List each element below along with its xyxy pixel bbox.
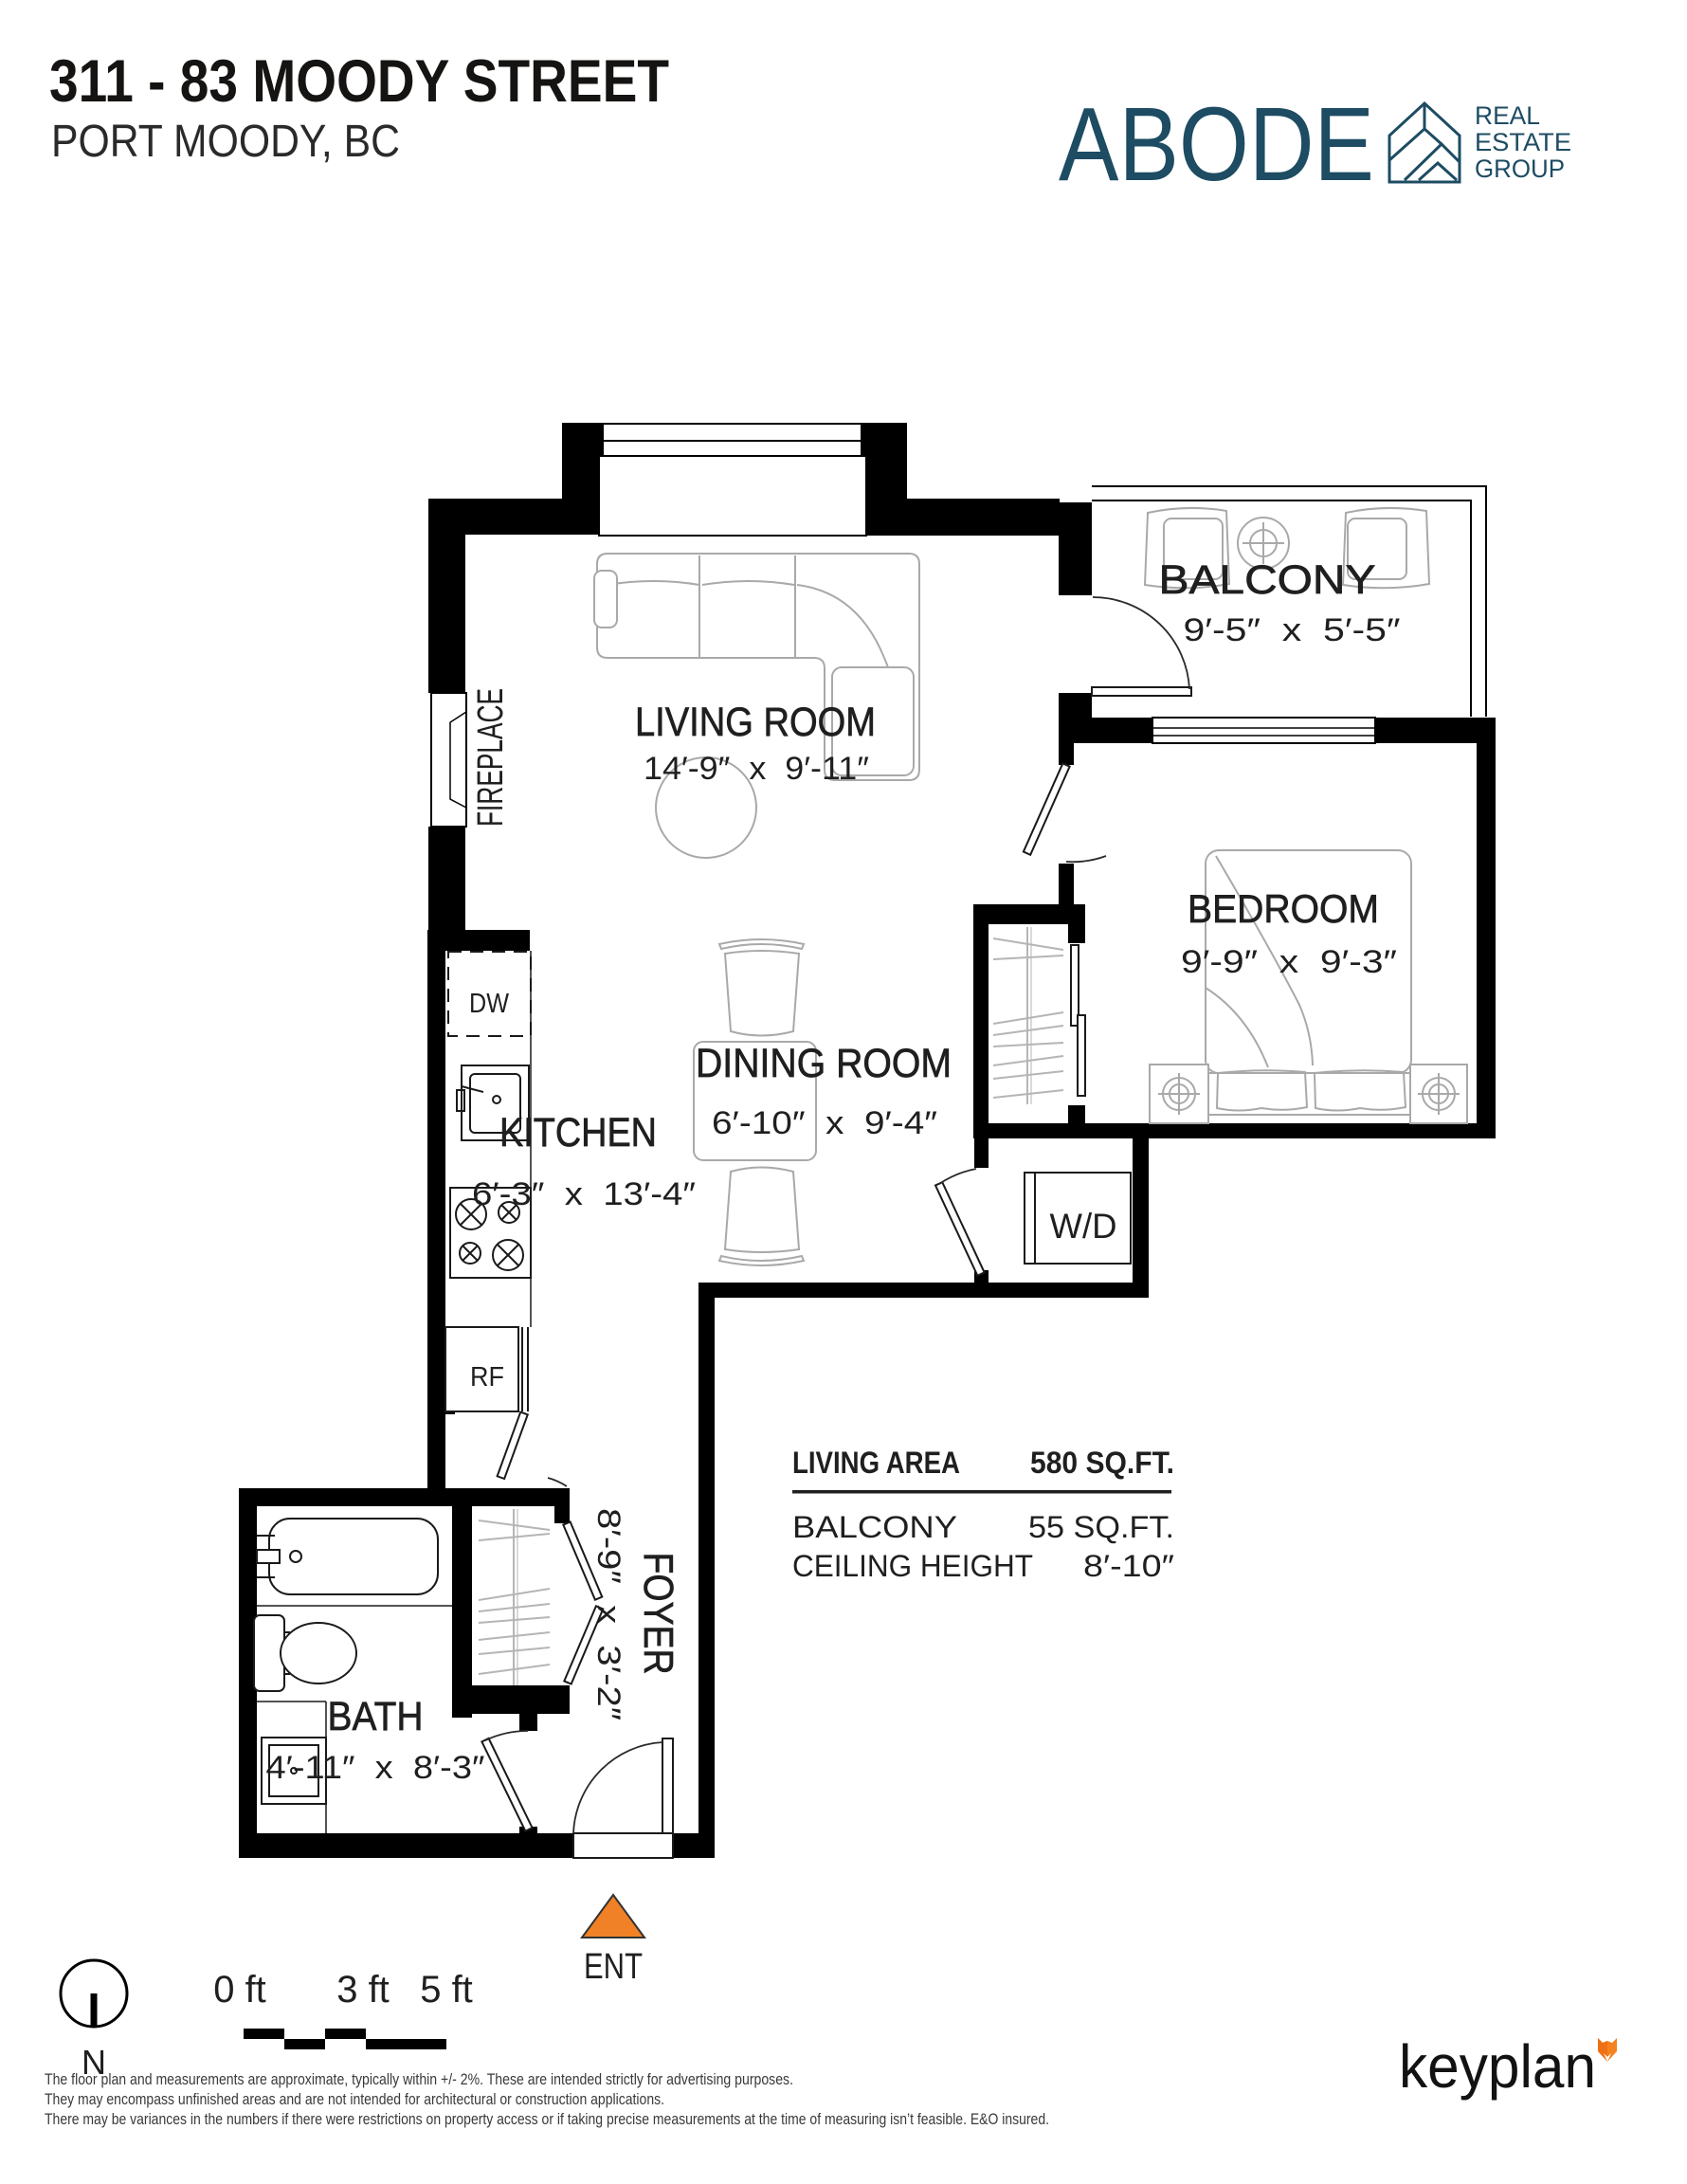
svg-text:55 SQ.FT.: 55 SQ.FT.	[1028, 1510, 1174, 1544]
svg-text:REAL: REAL	[1475, 101, 1540, 130]
svg-text:They may encompass unfinished: They may encompass unfinished areas and …	[45, 2090, 664, 2108]
svg-text:LIVING ROOM: LIVING ROOM	[635, 700, 876, 745]
svg-text:keyplan: keyplan	[1399, 2032, 1596, 2101]
svg-text:There may be variances in the: There may be variances in the numbers if…	[45, 2110, 1049, 2128]
svg-text:W/D: W/D	[1050, 1207, 1117, 1246]
svg-text:RF: RF	[470, 1362, 504, 1392]
svg-text:5 ft: 5 ft	[420, 1969, 473, 2011]
svg-text:DINING ROOM: DINING ROOM	[696, 1041, 952, 1086]
svg-text:BEDROOM: BEDROOM	[1188, 886, 1379, 931]
svg-text:ENT: ENT	[584, 1947, 643, 1987]
svg-text:6′-3″ x 13′-4″: 6′-3″ x 13′-4″	[472, 1176, 696, 1212]
svg-text:3 ft: 3 ft	[336, 1969, 390, 2011]
svg-text:BALCONY: BALCONY	[792, 1510, 957, 1544]
svg-text:8′-9″ x 3′-2″: 8′-9″ x 3′-2″	[590, 1508, 626, 1720]
svg-text:ESTATE: ESTATE	[1475, 128, 1571, 156]
svg-text:14′-9″ x 9′-11″: 14′-9″ x 9′-11″	[644, 751, 869, 787]
svg-text:CEILING HEIGHT: CEILING HEIGHT	[792, 1549, 1033, 1583]
svg-text:4′-11″ x 8′-3″: 4′-11″ x 8′-3″	[266, 1750, 485, 1786]
svg-text:FIREPLACE: FIREPLACE	[471, 688, 511, 827]
svg-text:LIVING AREA: LIVING AREA	[792, 1446, 960, 1480]
svg-text:8′-10″: 8′-10″	[1083, 1549, 1174, 1583]
svg-text:BALCONY: BALCONY	[1159, 557, 1376, 603]
svg-text:PORT MOODY, BC: PORT MOODY, BC	[51, 117, 400, 167]
svg-text:DW: DW	[469, 989, 510, 1019]
svg-text:KITCHEN: KITCHEN	[499, 1110, 657, 1156]
svg-text:The floor plan and measurement: The floor plan and measurements are appr…	[45, 2070, 793, 2088]
svg-text:9′-5″ x 5′-5″: 9′-5″ x 5′-5″	[1184, 612, 1401, 648]
svg-text:6′-10″ x 9′-4″: 6′-10″ x 9′-4″	[712, 1105, 937, 1141]
svg-text:ABODE: ABODE	[1059, 86, 1374, 203]
svg-text:311 - 83 MOODY STREET: 311 - 83 MOODY STREET	[49, 48, 669, 115]
svg-text:BATH: BATH	[328, 1694, 424, 1739]
svg-text:0 ft: 0 ft	[213, 1969, 266, 2011]
svg-text:FOYER: FOYER	[635, 1553, 681, 1675]
svg-text:580 SQ.FT.: 580 SQ.FT.	[1030, 1446, 1174, 1480]
svg-text:9′-9″ x 9′-3″: 9′-9″ x 9′-3″	[1181, 944, 1397, 980]
svg-text:GROUP: GROUP	[1475, 155, 1565, 183]
